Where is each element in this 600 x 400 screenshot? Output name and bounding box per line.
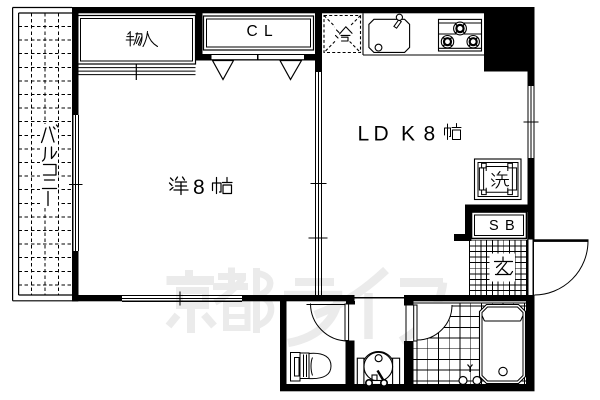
svg-text:K: K (401, 123, 415, 146)
svg-text:D: D (374, 123, 389, 146)
svg-text:8: 8 (193, 176, 205, 199)
svg-text:S: S (489, 218, 499, 234)
svg-text:B: B (505, 218, 515, 234)
svg-text:L: L (264, 23, 273, 40)
svg-text:C: C (247, 23, 258, 40)
svg-text:8: 8 (424, 123, 436, 146)
svg-text:L: L (358, 123, 370, 146)
